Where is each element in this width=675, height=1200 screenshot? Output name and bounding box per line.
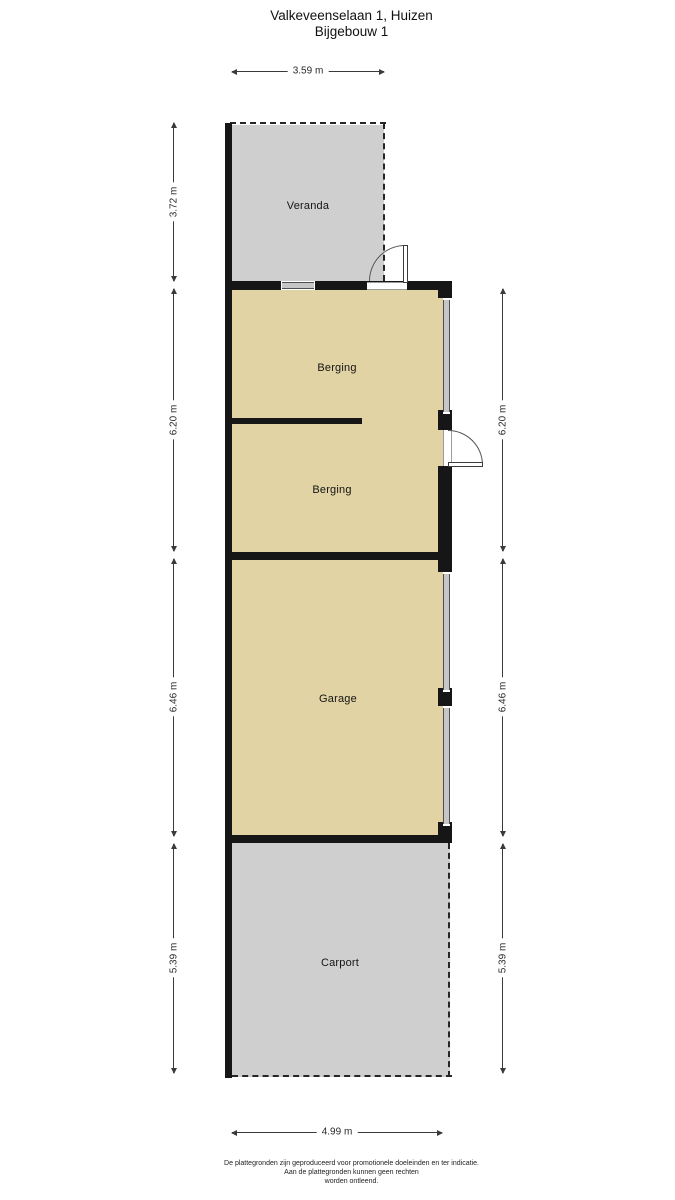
disclaimer-line-2: Aan de plattegronden kunnen geen rechten [14,1168,675,1177]
dimension-label-right-berging: 6.20 m [497,401,510,440]
dimension-label-right-garage: 6.46 m [497,678,510,717]
plan-title: Valkeveenselaan 1, Huizen Bijgebouw 1 [14,8,675,40]
disclaimer-line-3: worden ontleend. [14,1177,675,1186]
dimension-label-left-carport: 5.39 m [168,939,181,978]
wall-berging-garage [225,552,452,560]
veranda-dashed-top-edge [230,122,386,124]
carport-dashed-bottom-edge [232,1075,452,1077]
dimension-label-left-garage: 6.46 m [168,678,181,717]
disclaimer: De plattegronden zijn geproduceerd voor … [14,1159,675,1186]
window-garage-right-lower [443,706,450,826]
floorplan-page: { "title": { "line1": "Valkeveenselaan 1… [0,0,675,1200]
wall-left-exterior [225,123,232,1078]
door-opening-veranda [367,282,407,290]
dimension-label-top: 3.59 m [288,66,329,77]
room-label-berging-1: Berging [317,362,356,374]
window-garage-right-upper [443,572,450,692]
dimension-label-bottom: 4.99 m [317,1127,358,1138]
dimension-label-right-carport: 5.39 m [497,939,510,978]
wall-berging-partition [225,418,362,424]
window-berging-right [443,298,450,414]
building-subtitle: Bijgebouw 1 [14,24,675,40]
window-berging-top [281,281,315,290]
carport-dashed-right-edge [448,843,450,1077]
wall-berging-top [225,281,452,290]
wall-garage-carport [225,835,452,843]
room-label-carport: Carport [321,957,359,969]
room-label-berging-2: Berging [312,484,351,496]
door-leaf-veranda [403,245,408,283]
wall-right-corner-top [438,281,452,298]
disclaimer-line-1: De plattegronden zijn geproduceerd voor … [14,1159,675,1168]
room-label-garage: Garage [319,693,357,705]
dimension-label-left-veranda: 3.72 m [168,183,181,222]
dimension-label-left-berging: 6.20 m [168,401,181,440]
door-swing-arc-berging [448,430,483,465]
address-title: Valkeveenselaan 1, Huizen [14,8,675,24]
door-leaf-berging [448,462,483,467]
room-label-veranda: Veranda [287,200,329,212]
wall-right-pier-2 [438,466,452,572]
